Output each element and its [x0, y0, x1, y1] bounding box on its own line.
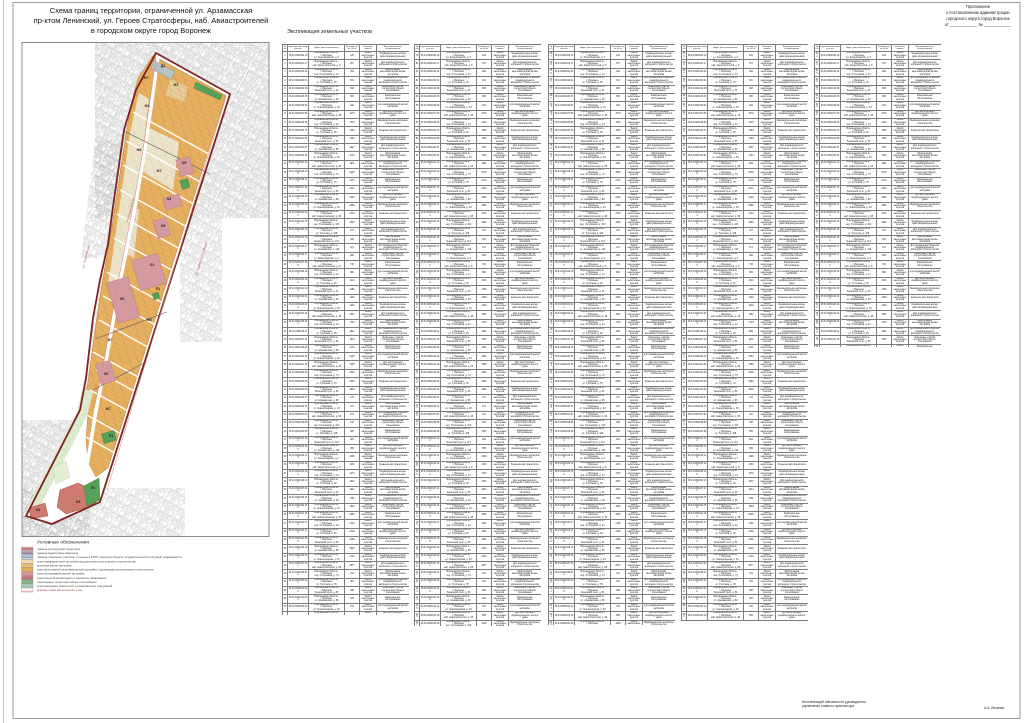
svg-text:Ж3: Ж3 — [144, 104, 150, 108]
svg-text:О3: О3 — [76, 500, 81, 504]
svg-text:красные линии магистралей и ул: красные линии магистралей и улиц — [37, 588, 83, 592]
svg-text:граница исследуемой территории: граница исследуемой территории — [37, 547, 81, 551]
svg-text:зона обслуживания жилой застро: зона обслуживания жилой застройки — [37, 572, 85, 576]
svg-text:О4: О4 — [167, 197, 172, 201]
svg-text:Ж9: Ж9 — [146, 318, 152, 322]
svg-text:озелененные территории общего: озелененные территории общего пользовани… — [37, 580, 97, 584]
svg-text:П1: П1 — [156, 287, 160, 291]
svg-text:зона инженерно-технических и к: зона инженерно-технических и коммунальны… — [37, 584, 113, 588]
svg-text:Ж7: Ж7 — [143, 76, 149, 80]
svg-text:Ж7: Ж7 — [173, 83, 179, 87]
svg-text:зона малоэтажной многоквартирн: зона малоэтажной многоквартирной застрой… — [37, 568, 154, 572]
svg-text:Ж7: Ж7 — [156, 169, 162, 173]
svg-text:О5: О5 — [104, 372, 109, 376]
svg-text:граница кадастровых кварталов: граница кадастровых кварталов — [37, 552, 79, 555]
svg-text:границы земельных участков, уч: границы земельных участков, учтенных в Е… — [37, 555, 182, 559]
svg-text:зона индивидуальной застройки: зона индивидуальной застройки под дополн… — [37, 559, 136, 563]
svg-text:высотная жилая застройка: высотная жилая застройка — [37, 564, 72, 568]
svg-text:О1: О1 — [150, 263, 155, 267]
svg-text:зона объектов дошкольного и шк: зона объектов дошкольного и школьного об… — [37, 576, 107, 580]
svg-text:Ж7: Ж7 — [105, 407, 111, 411]
svg-text:Ж7: Ж7 — [107, 338, 113, 342]
svg-text:О3: О3 — [36, 508, 41, 512]
svg-text:Условные обозначения: Условные обозначения — [37, 540, 89, 546]
svg-text:П1: П1 — [109, 434, 113, 438]
svg-text:П1: П1 — [91, 486, 95, 490]
svg-text:О5: О5 — [182, 161, 187, 165]
svg-text:О5: О5 — [120, 297, 125, 301]
svg-text:Ж6: Ж6 — [136, 148, 142, 152]
svg-text:Д1: Д1 — [161, 64, 165, 68]
svg-text:О5: О5 — [161, 224, 166, 228]
